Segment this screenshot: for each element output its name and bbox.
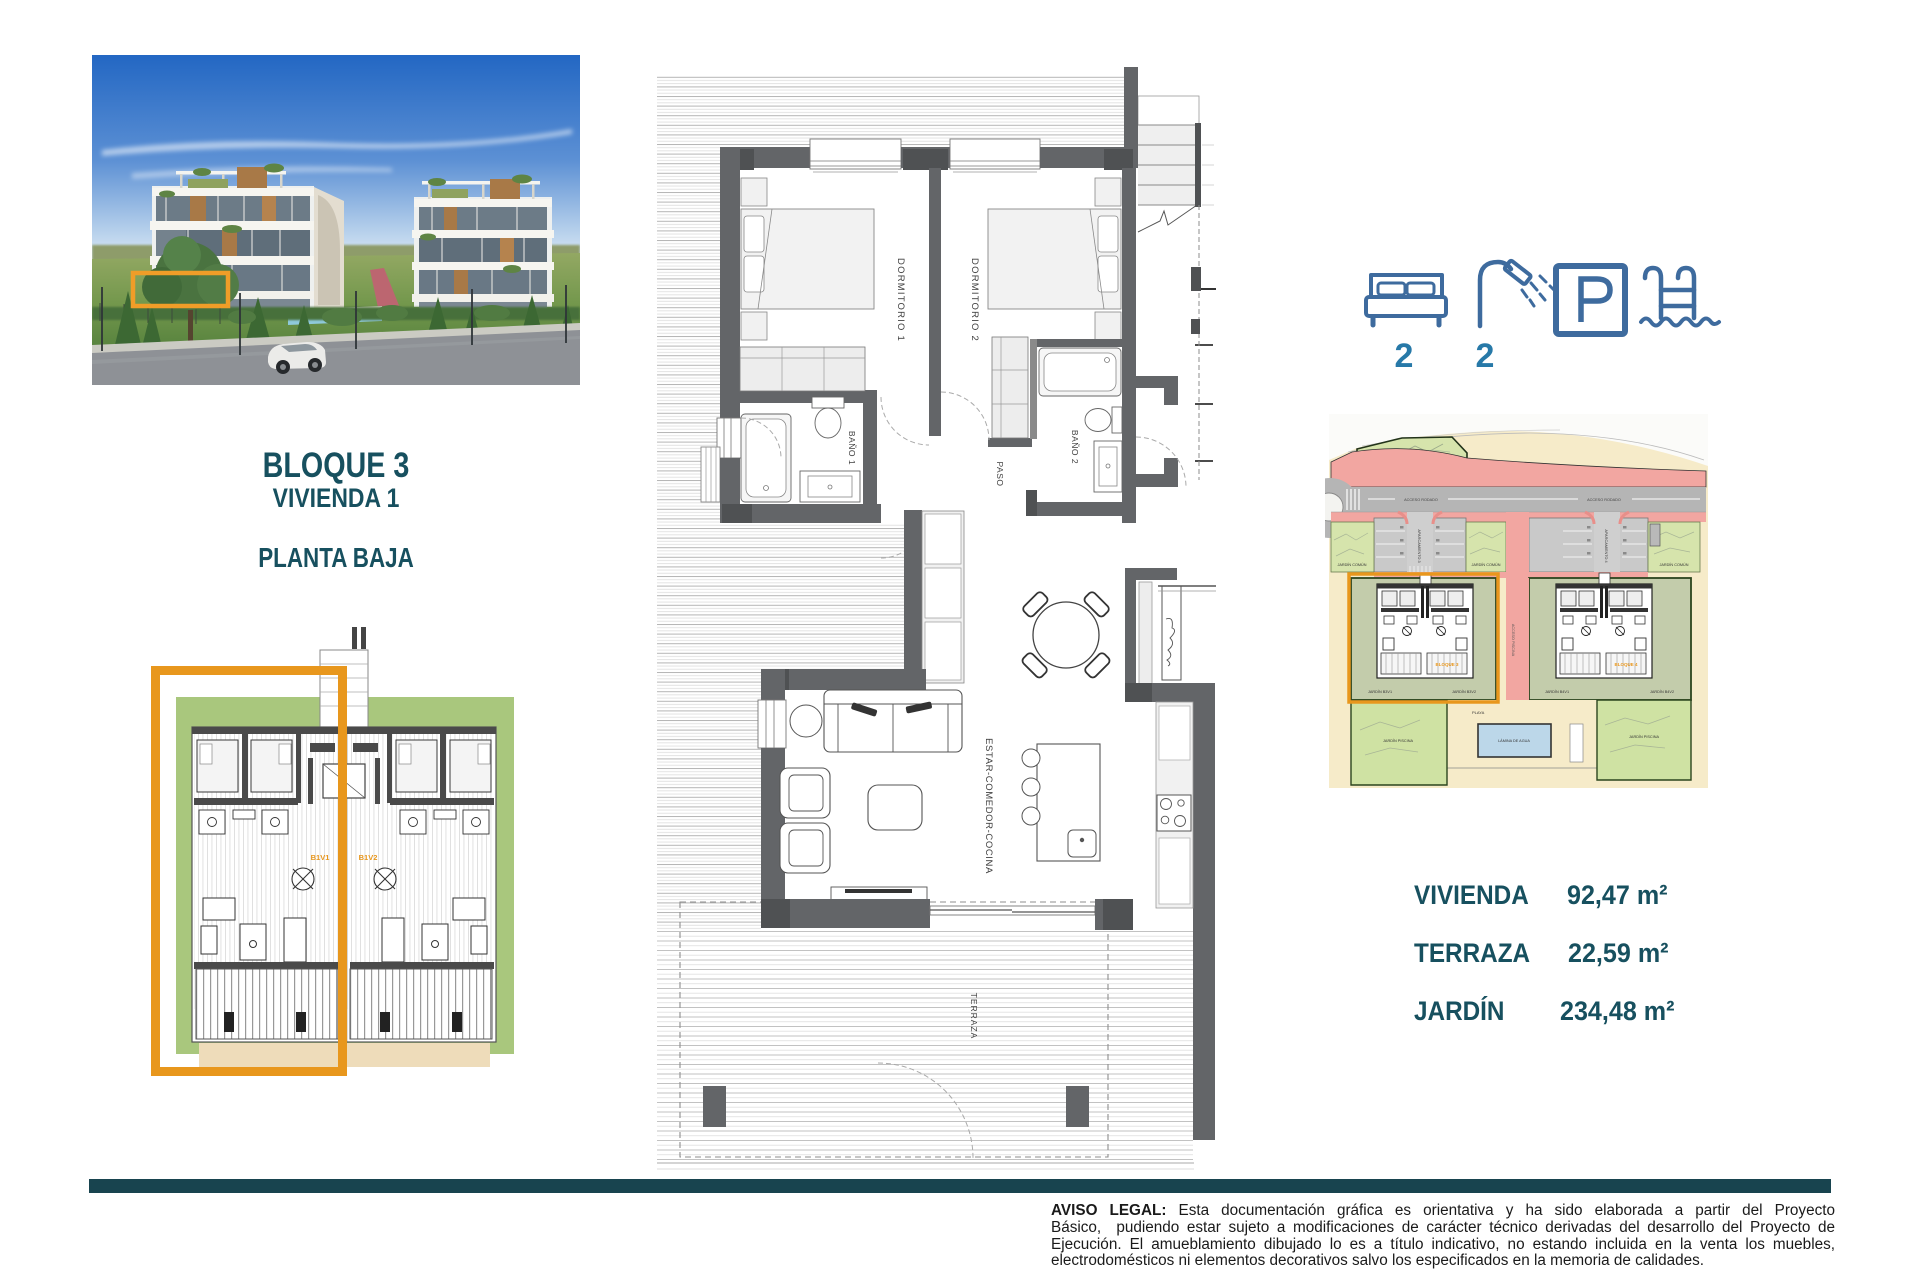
svg-text:DORMITORIO 2: DORMITORIO 2 [969,258,980,342]
svg-text:ACCESO RODADO: ACCESO RODADO [1404,498,1438,502]
svg-text:TERRAZA: TERRAZA [969,993,979,1040]
svg-text:APARCAMIENTO 3: APARCAMIENTO 3 [1417,529,1421,562]
svg-text:LÁMINA DE AGUA: LÁMINA DE AGUA [1498,739,1530,743]
svg-text:B1V2: B1V2 [359,853,378,862]
svg-text:BLOQUE 4: BLOQUE 4 [1614,662,1638,667]
svg-text:BLOQUE 3: BLOQUE 3 [1435,662,1459,667]
svg-text:BAÑO 2: BAÑO 2 [1070,430,1080,464]
svg-text:JARDÍN PISCINA: JARDÍN PISCINA [1629,735,1659,739]
svg-text:APARCAMIENTO 4: APARCAMIENTO 4 [1604,529,1608,562]
svg-text:ACCESO PISCINA: ACCESO PISCINA [1511,624,1515,657]
svg-text:BAÑO 1: BAÑO 1 [847,431,857,465]
svg-text:JARDÍN B3V2: JARDÍN B3V2 [1452,690,1476,694]
svg-text:JARDÍN COMÚN: JARDÍN COMÚN [1659,562,1688,567]
svg-text:ACCESO RODADO: ACCESO RODADO [1587,498,1621,502]
svg-text:2: 2 [1395,337,1414,375]
svg-text:DORMITORIO 1: DORMITORIO 1 [895,258,906,342]
svg-text:JARDÍN COMÚN: JARDÍN COMÚN [1337,562,1366,567]
svg-text:JARDÍN B4V2: JARDÍN B4V2 [1650,690,1674,694]
svg-text:PLAYA: PLAYA [1472,710,1485,715]
svg-text:ESTAR-COMEDOR-COCINA: ESTAR-COMEDOR-COCINA [983,738,994,874]
svg-text:B1V1: B1V1 [311,853,330,862]
svg-text:2: 2 [1476,337,1495,375]
svg-text:JARDÍN B3V1: JARDÍN B3V1 [1368,690,1392,694]
svg-text:PASO: PASO [995,462,1005,487]
svg-text:JARDÍN B4V1: JARDÍN B4V1 [1545,690,1569,694]
svg-text:JARDÍN PISCINA: JARDÍN PISCINA [1383,739,1413,743]
svg-text:JARDÍN COMÚN: JARDÍN COMÚN [1471,562,1500,567]
